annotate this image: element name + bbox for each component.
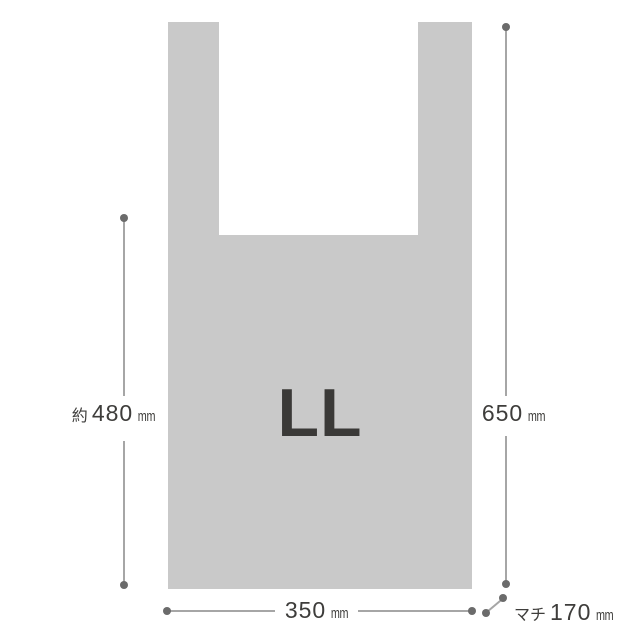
gusset-prefix: マチ [514, 608, 546, 624]
bag-left-handle [168, 22, 219, 235]
bottom-width-unit: mm [331, 606, 348, 621]
gusset-unit: mm [596, 608, 613, 623]
right-dimension-line-lower [505, 436, 507, 581]
left-dimension-line-lower [123, 441, 125, 582]
right-dimension-bottom-dot [502, 580, 510, 588]
left-dimension-top-dot [120, 214, 128, 222]
bottom-dimension-line-left [170, 610, 275, 612]
bottom-width-value: 350 [285, 599, 326, 622]
gusset-outer-dot [482, 609, 490, 617]
right-height-unit: mm [528, 409, 545, 424]
bottom-dimension-line-right [358, 610, 469, 612]
gusset-inner-dot [499, 594, 507, 602]
gusset-label: マチ 170 mm [514, 601, 620, 624]
left-dimension-bottom-dot [120, 581, 128, 589]
bag-size-label: LL [168, 388, 472, 438]
right-height-value: 650 [482, 402, 523, 425]
bottom-dimension-right-dot [468, 607, 476, 615]
left-height-unit: mm [138, 409, 155, 424]
bag-right-handle [418, 22, 472, 235]
gusset-value: 170 [550, 601, 591, 624]
bottom-width-label: 350 mm [285, 599, 355, 622]
left-dimension-line-upper [123, 221, 125, 396]
right-dimension-top-dot [502, 23, 510, 31]
left-height-value: 480 [92, 402, 133, 425]
left-height-prefix: 約 [72, 409, 88, 425]
right-height-label: 650 mm [482, 402, 552, 425]
bottom-dimension-left-dot [163, 607, 171, 615]
bag-size-diagram: LL 約 480 mm 650 mm 350 mm マチ 170 mm [0, 0, 640, 640]
right-dimension-line-upper [505, 30, 507, 396]
left-height-label: 約 480 mm [72, 402, 162, 425]
